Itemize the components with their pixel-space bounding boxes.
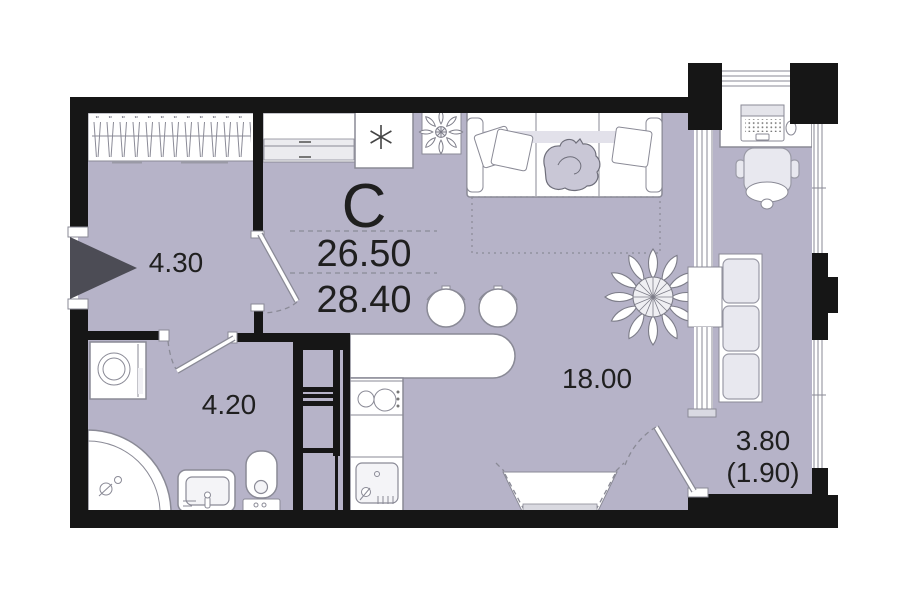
- sofa: [467, 103, 662, 197]
- glazing-cabinet: [688, 267, 722, 327]
- living-kitchen-area-label: 18.00: [562, 363, 632, 394]
- side-table: [355, 112, 413, 168]
- hall-area-label: 4.30: [149, 247, 204, 278]
- bar-counter: [350, 334, 515, 378]
- balcony-reduced-area-label: (1.90): [726, 457, 799, 488]
- area-with-balcony-label: 28.40: [316, 279, 411, 321]
- washbasin: [178, 470, 235, 512]
- kitchen-counter: [350, 378, 403, 512]
- plant-small: [419, 110, 462, 154]
- floor-plan-page: C 26.50 28.40 4.30 4.20 18.00 3.80 (1.90…: [0, 0, 900, 600]
- kitchen-upper-cabinet: [263, 113, 355, 162]
- total-area-label: 26.50: [316, 233, 411, 275]
- hall-wardrobe: [88, 113, 255, 164]
- window-top: [722, 66, 790, 92]
- bathroom-area-label: 4.20: [202, 389, 257, 420]
- balcony-area-label: 3.80: [736, 425, 791, 456]
- toilet: [243, 451, 280, 512]
- cat: [544, 139, 600, 190]
- washing-machine: [90, 342, 146, 399]
- balcony-bench: [719, 254, 762, 402]
- floor-plan: C 26.50 28.40 4.30 4.20 18.00 3.80 (1.90…: [0, 0, 900, 600]
- laptop: [741, 105, 784, 141]
